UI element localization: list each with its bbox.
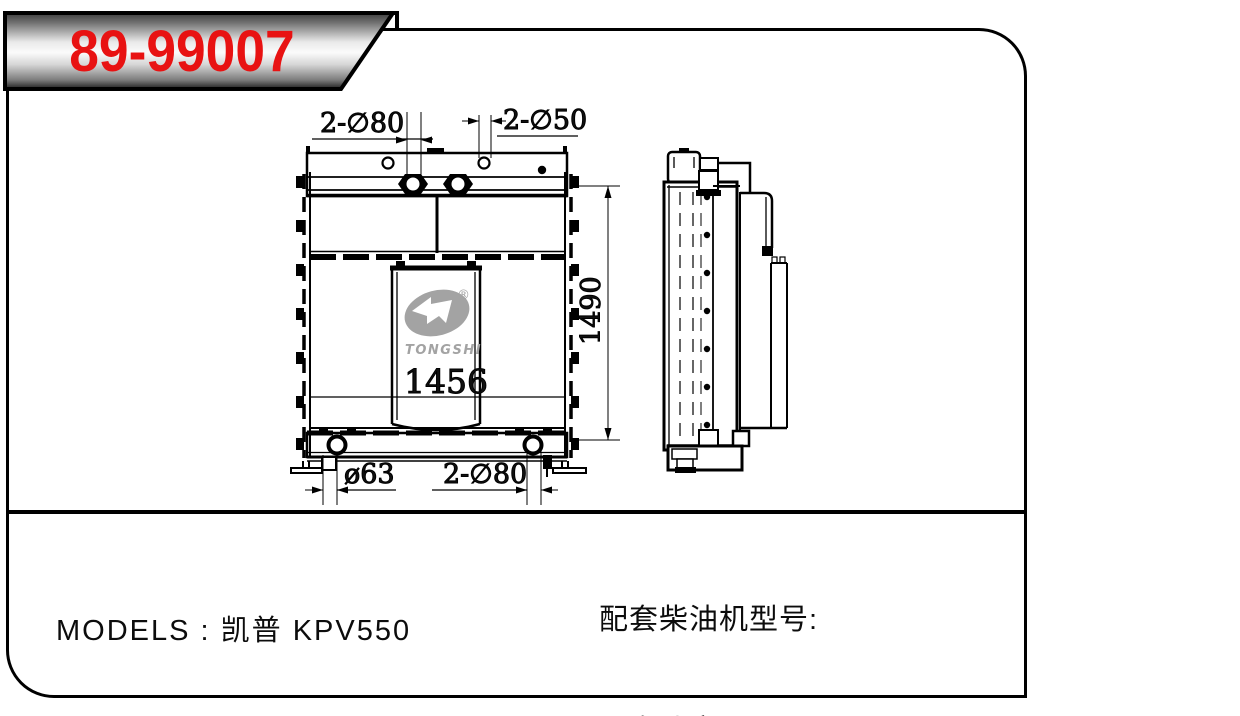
dim-top-left-label: 2-∅80 [320, 108, 404, 139]
dim-core-width-label: 1456 [404, 362, 488, 401]
catalog-page: 89-99007 [0, 0, 1240, 716]
specs-right-column: 配套柴油机型号: 配套功率(KW) : 直径*中心高 : ∅1340*880 安… [599, 528, 951, 716]
brand-logo: ® TONGSHI [399, 283, 482, 358]
logo-wordmark: TONGSHI [405, 343, 482, 358]
dim-height-label: 1490 [576, 276, 607, 345]
dim-bottom-left-label: ø63 [344, 459, 395, 490]
dim-top-right-label: 2-∅50 [503, 105, 587, 136]
side-view [664, 148, 787, 473]
specs-left-column: MODELS : 凯普 KPV550 CORE SIZE : 1490×1456… [56, 541, 484, 716]
spec-engine-model: 配套柴油机型号: [599, 602, 951, 639]
spec-models: MODELS : 凯普 KPV550 [56, 613, 484, 649]
registered-mark-icon: ® [457, 288, 470, 303]
dim-bottom-center-label: 2-∅80 [443, 459, 527, 490]
